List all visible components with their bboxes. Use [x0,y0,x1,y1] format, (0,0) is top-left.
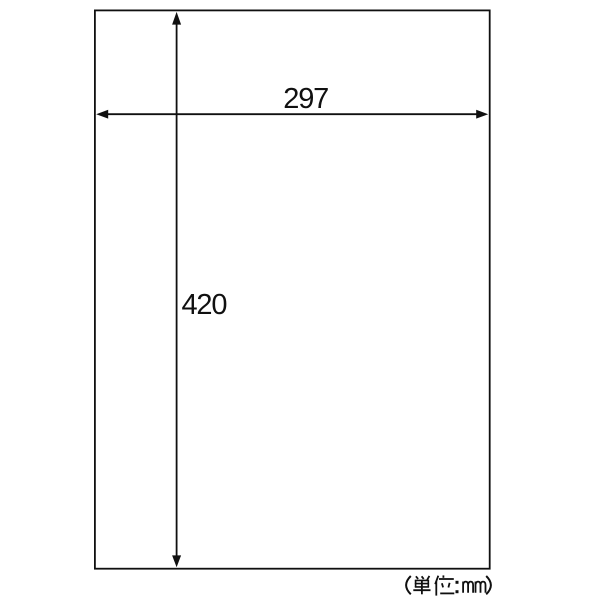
svg-text:297: 297 [283,83,328,115]
svg-text:420: 420 [182,289,227,321]
